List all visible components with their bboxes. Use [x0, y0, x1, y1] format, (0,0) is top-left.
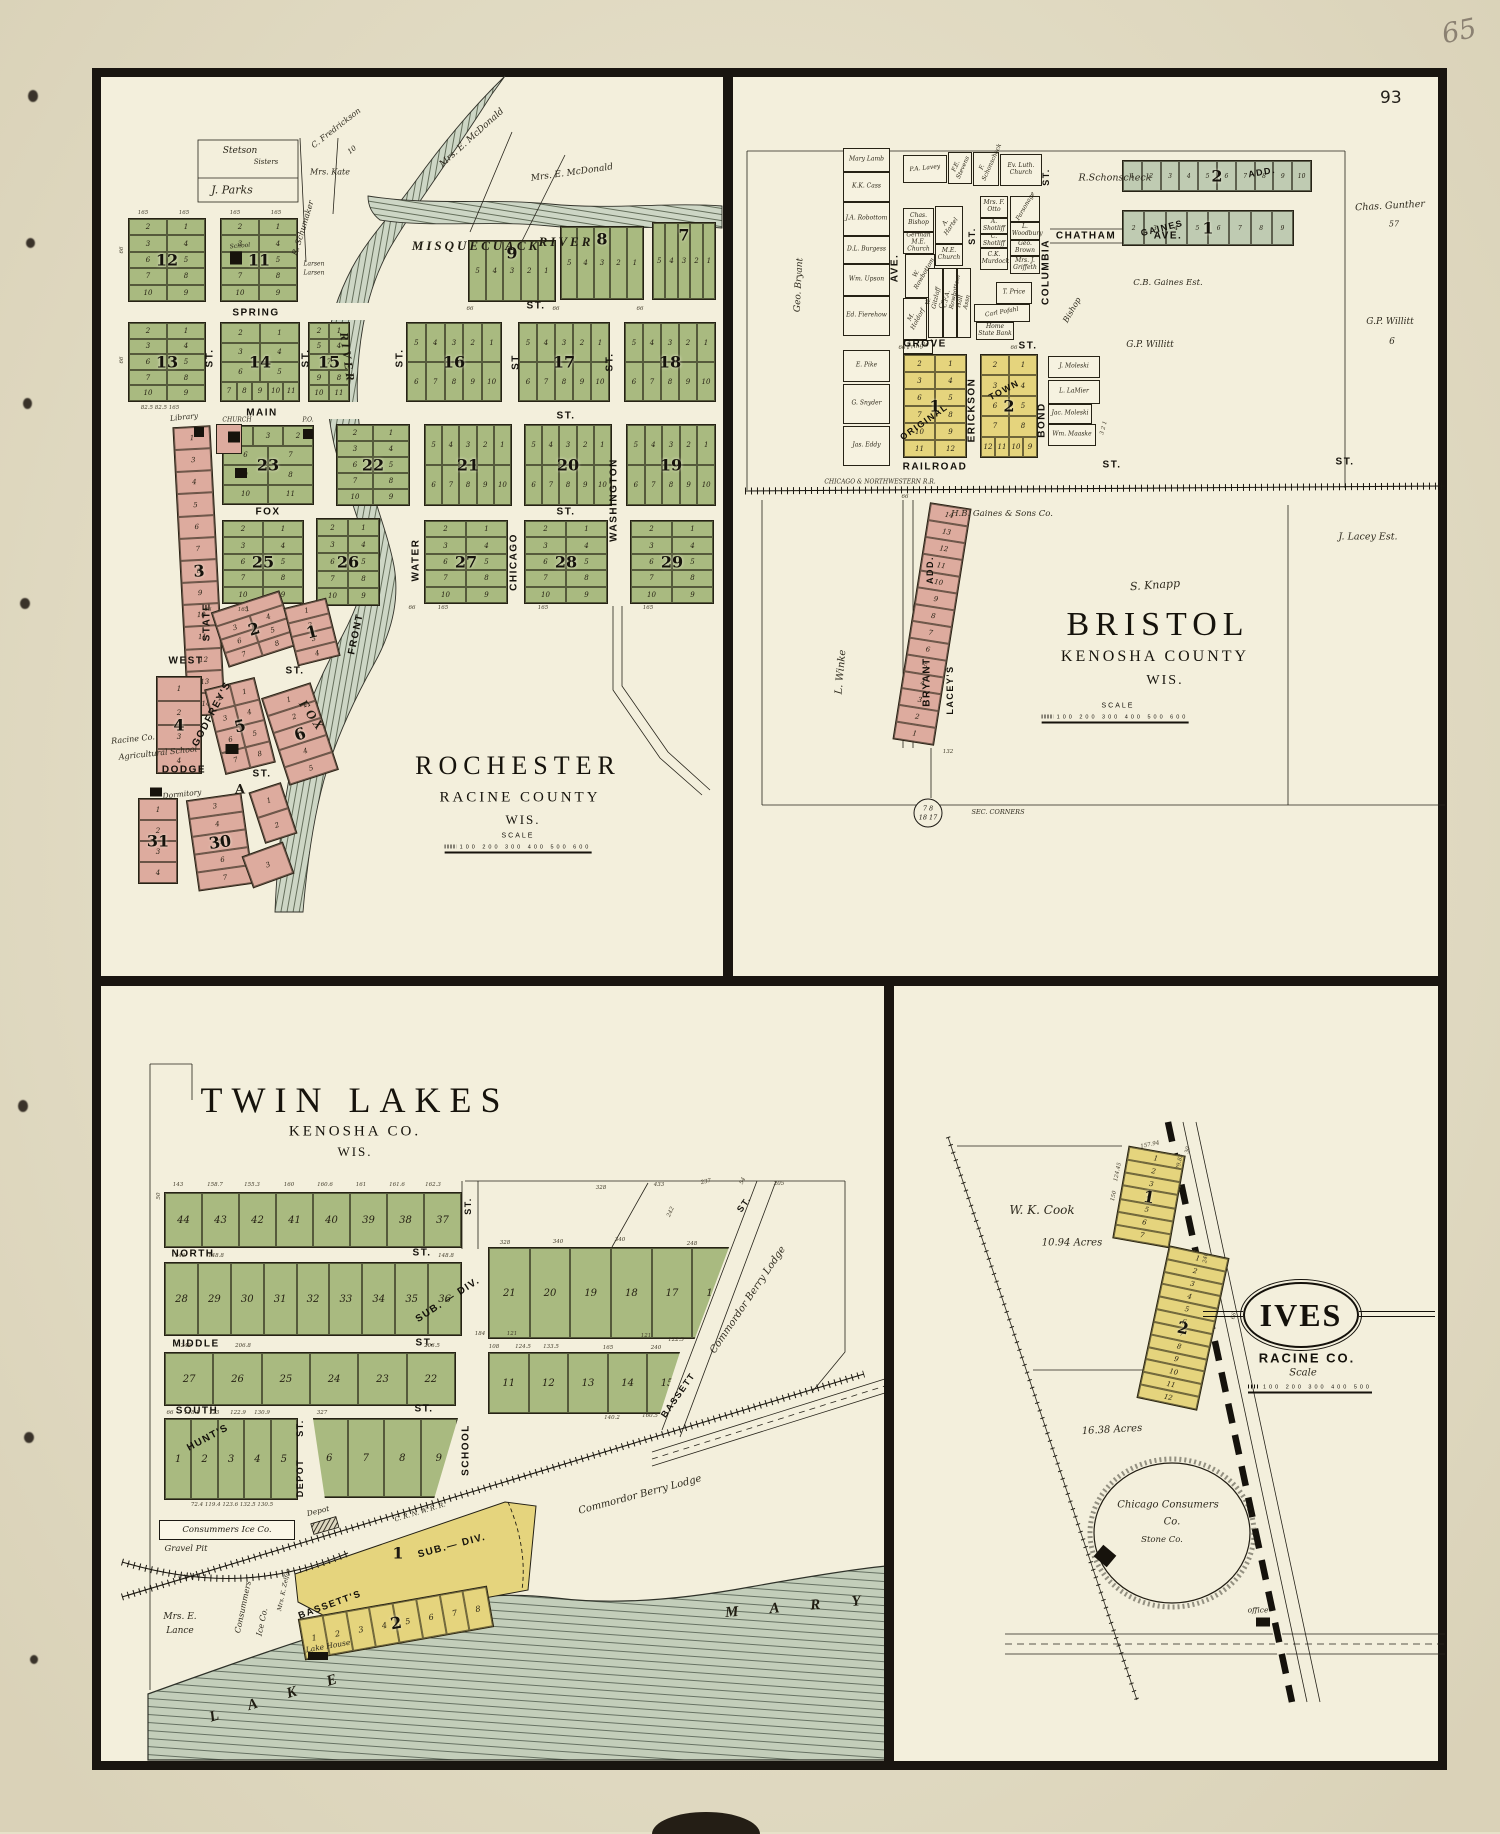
dimension-label: 161: [356, 1182, 367, 1188]
block-number: 4: [173, 716, 184, 735]
street-label: WEST: [169, 656, 204, 667]
dimension-label: 165: [238, 607, 249, 613]
scale-label: SCALE: [1102, 703, 1135, 710]
plat-block-ives-1: 12345671: [1112, 1146, 1185, 1249]
owner-label: Mrs. E.: [163, 1612, 196, 1622]
plat-block: Geo. Brown: [1010, 240, 1040, 256]
block-number: 2: [1003, 397, 1014, 416]
dimension-label: 328: [596, 1185, 607, 1191]
owner-label: Scale: [1289, 1368, 1317, 1379]
owner-label: C.B. Gaines Est.: [1133, 278, 1202, 288]
street-label: ST.: [463, 1197, 473, 1215]
dimension-label: 124.5: [515, 1344, 531, 1350]
owner-label: W. K. Cook: [1009, 1203, 1074, 1217]
block-number: 20: [557, 456, 579, 475]
street-label: WASHINGTON: [609, 458, 620, 542]
dimension-label: 328: [500, 1240, 511, 1246]
boxed-label: Consummers Ice Co.: [159, 1520, 295, 1540]
street-label: CHATHAM: [1056, 231, 1116, 242]
dimension-label: 433: [654, 1182, 665, 1188]
dimension-label: 184: [475, 1331, 486, 1337]
map-subtitle: KENOSHA COUNTY: [1061, 648, 1249, 666]
dimension-label: 165: [538, 605, 549, 611]
street-label: ST.: [1103, 460, 1122, 471]
owner-label: Mrs. Kate: [310, 168, 350, 177]
building-icon: [228, 432, 240, 443]
small-label: CHICAGO & NORTHWESTERN R.R.: [824, 479, 935, 486]
owner-label: Stetson: [223, 146, 258, 156]
scale-bar: 100 200 300 400 500 600: [445, 845, 592, 854]
plat-maps: 2134657810912213465781091154321954321854…: [0, 0, 1500, 1832]
dimension-label: 66: [1230, 1312, 1238, 1320]
dimension-label: 66: [119, 357, 125, 364]
owner-label: Co.: [1164, 1517, 1181, 1528]
parcel-owner-label: Jac. Moleski: [1050, 411, 1089, 418]
parcel-owner-label: German M.E. Church: [905, 233, 932, 254]
dimension-label: 122.5: [668, 1337, 684, 1343]
owner-label: Chicago Consumers: [1117, 1500, 1218, 1511]
block-number: 1: [1202, 219, 1213, 238]
map-subtitle2: WIS.: [505, 812, 540, 828]
owner-label: H.B. Gaines & Sons Co.: [951, 509, 1053, 519]
dimension-label: 206.8: [235, 1343, 251, 1349]
street-label: WATER: [411, 539, 422, 582]
street-label: ST.: [413, 1248, 432, 1259]
building-icon: [1094, 1545, 1117, 1567]
map-subtitle2: WIS.: [337, 1144, 372, 1160]
map-county-label: RACINE CO.: [1259, 1351, 1356, 1366]
owner-label: 57: [1389, 220, 1399, 229]
dimension-label: 50: [156, 1193, 162, 1200]
parcel-owner-label: Jas. Eddy: [845, 443, 887, 450]
dimension-label: 66: [167, 1410, 174, 1416]
dimension-label: 66: [205, 607, 212, 613]
block-number: 27: [455, 553, 477, 572]
dimension-label: 165: [271, 210, 282, 216]
parcel-owner-label: T. Price: [998, 290, 1030, 297]
scale-bar: 100 200 300 400 500 600: [1042, 715, 1189, 724]
block-number: 23: [257, 456, 279, 475]
parcel-owner-label: J. Moleski: [1051, 364, 1098, 371]
owner-label: Lance: [166, 1626, 194, 1636]
dimension-label: 165: [643, 605, 654, 611]
dimension-label: 158.7: [207, 1182, 223, 1188]
owner-label: G.P. Willitt: [1126, 340, 1174, 350]
map-subtitle: RACINE COUNTY: [439, 790, 600, 807]
street-label: ST.: [395, 349, 406, 368]
block-number: 17: [553, 353, 575, 372]
street-label: ST.: [557, 411, 576, 422]
dimension-label: 66: [1011, 345, 1018, 351]
block-number: 18: [659, 353, 681, 372]
block-number: 22: [362, 456, 384, 475]
building-icon: [235, 468, 247, 478]
section-corner-marker: 7 8 18 17: [914, 799, 943, 828]
street-label: AVE.: [890, 254, 901, 283]
street-label: COLUMBIA: [1041, 239, 1052, 305]
street-label: ST.: [527, 301, 546, 312]
block-number: 26: [337, 553, 359, 572]
dimension-label: 66: [409, 605, 416, 611]
dimension-label: 160: [284, 1182, 295, 1188]
parcel-owner-label: C. Shotliff: [982, 234, 1006, 248]
street-label: BOND: [1037, 402, 1048, 437]
street-label: ST.: [295, 1419, 305, 1437]
owner-label: 6: [1389, 337, 1395, 347]
parcel-owner-label: Ev. Luth. Church: [1002, 163, 1040, 177]
parcel-owner-label: Mary Lamb: [845, 157, 887, 164]
block-number: 14: [249, 353, 271, 372]
street-label: SPRING: [232, 308, 279, 319]
street-label: ST.: [415, 1404, 434, 1415]
parcel-owner-label: C.K. Murdock: [982, 252, 1006, 266]
street-label: CHICAGO: [509, 533, 520, 591]
map-title: ROCHESTER: [415, 751, 621, 781]
map-title-ives: IVES: [1243, 1282, 1359, 1348]
street-label: ST.: [1336, 457, 1355, 468]
map-title: TWIN LAKES: [201, 1079, 510, 1121]
street-label: DODGE: [162, 765, 206, 776]
dimension-label: 121: [641, 1333, 652, 1339]
dimension-label: 66: [119, 247, 125, 254]
block-number: 15: [318, 353, 340, 372]
block-number: 11: [248, 251, 270, 270]
parcel-owner-label: A. Shotliff: [982, 219, 1006, 233]
map-subtitle2: WIS.: [1146, 673, 1183, 689]
street-label: ST.: [967, 227, 977, 245]
owner-label: Gravel Pit: [164, 1544, 207, 1554]
street-label: ST.: [286, 666, 305, 677]
parcel-owner-label: Home State Bank: [978, 324, 1012, 338]
dimension-label: 122.9: [230, 1410, 246, 1416]
dimension-label: 161.6: [389, 1182, 405, 1188]
parcel-owner-label: Mrs. F. Otto: [982, 200, 1006, 214]
owner-label: R.Schonscheck: [1079, 173, 1152, 184]
street-label: ADD.: [925, 556, 935, 584]
dimension-label: 327: [317, 1410, 328, 1416]
block-number: 13: [156, 353, 178, 372]
parcel-owner-label: Chas. Bishop: [905, 213, 932, 227]
owner-label: J. Lacey Est.: [1338, 532, 1397, 543]
map-title: BRISTOL: [1066, 606, 1249, 644]
dimension-label: 150: [1110, 1190, 1118, 1202]
building-icon: [194, 427, 204, 437]
dimension-label: 143: [173, 1182, 184, 1188]
street-label: FOX: [255, 507, 280, 518]
dimension-label: 148.8: [208, 1253, 224, 1259]
map-subtitle: KENOSHA CO.: [289, 1124, 421, 1141]
dimension-label: 165: [138, 210, 149, 216]
dimension-label: 123: [209, 1410, 220, 1416]
dimension-label: 132: [943, 749, 954, 755]
street-label: ST.: [1019, 341, 1038, 352]
parcel-owner-label: L. Woodbury: [1012, 224, 1038, 238]
street-label: ST.: [605, 353, 616, 372]
street-label: SCHOOL: [461, 1424, 472, 1476]
street-label: ST.: [205, 349, 216, 368]
dimension-label: 162.3: [425, 1182, 441, 1188]
dimension-label: 340: [615, 1237, 626, 1243]
street-label: MIDDLE: [172, 1339, 219, 1350]
dimension-label: 82.5 82.5 165: [141, 405, 180, 411]
water-label: MISQUECUACK: [412, 238, 540, 254]
block-number: 16: [443, 353, 465, 372]
small-label: Larsen: [304, 270, 325, 277]
parcel-owner-label: G. Snyder: [845, 401, 887, 408]
parcel-owner-label: M.E. Church: [937, 248, 961, 262]
atlas-page: { "page": {"number": "93", "handwritten_…: [0, 0, 1500, 1832]
dimension-label: 66: [467, 306, 474, 312]
street-label: BRYANT: [922, 657, 933, 706]
parcel-owner-label: J.A. Robottom: [845, 216, 887, 223]
parcel-owner-label: Wm. Maaske: [1050, 432, 1093, 439]
parcel-owner-label: L. LaMier: [1051, 389, 1098, 396]
dimension-label: 205: [774, 1181, 785, 1187]
street-label: ST.: [301, 349, 312, 368]
owner-label: J. Parks: [211, 184, 253, 197]
map-panel-ives: 123456711234567891011122W. K. Cook10.94 …: [0, 0, 1500, 1832]
owner-label: Stone Co.: [1141, 1535, 1183, 1545]
plat-block: L. Woodbury: [1010, 222, 1040, 240]
owner-label: G.P. Willitt: [1366, 317, 1414, 327]
building-icon: [226, 744, 239, 754]
street-label: ST: [511, 354, 522, 370]
water-label: RIVER: [539, 234, 594, 250]
dimension-label: 124.45: [1113, 1162, 1123, 1182]
dimension-label: 243: [181, 1343, 192, 1349]
building-icon: [150, 788, 162, 797]
dimension-label: 66: [902, 494, 909, 500]
block-number: 25: [252, 553, 274, 572]
dimension-label: 165: [179, 210, 190, 216]
dimension-label: 66: [637, 306, 644, 312]
dimension-label: 72.4 119.4 123.6 132.5 130.5: [191, 1502, 273, 1508]
dimension-label: 165: [230, 210, 241, 216]
building-icon: [308, 1652, 328, 1660]
small-label: Larsen: [304, 261, 325, 268]
dimension-label: 206.5: [424, 1343, 440, 1349]
dimension-label: 248: [687, 1241, 698, 1247]
parcel-owner-label: D.L. Burgess: [845, 247, 887, 254]
block-letter: A: [235, 783, 245, 798]
block-number: 12: [156, 251, 178, 270]
page-number: 93: [1380, 88, 1402, 108]
plat-block: Mrs. J. Griffeth: [1010, 256, 1040, 274]
dimension-label: 121: [507, 1331, 518, 1337]
block-number: 2: [1211, 167, 1222, 186]
street-label: ST.: [253, 769, 272, 780]
street-label: DEPOT: [295, 1459, 305, 1498]
block-number: 19: [660, 456, 682, 475]
parcel-owner-label: E. Pike: [845, 363, 887, 370]
plat-block: German M.E. Church: [903, 232, 934, 254]
street-label: ERICKSON: [967, 378, 978, 443]
block-number: 28: [555, 553, 577, 572]
block-number: 7: [678, 226, 689, 245]
dimension-label: 108: [489, 1344, 500, 1350]
dimension-label: 140.2: [604, 1415, 620, 1421]
street-label: ST.: [557, 507, 576, 518]
block-number: 31: [147, 832, 169, 851]
owner-label: 10.94 Acres: [1042, 1238, 1102, 1249]
block-number: 8: [596, 230, 607, 249]
owner-label: 16.38 Acres: [1082, 1423, 1143, 1437]
parcel-owner-label: Geo. Brown: [1012, 241, 1038, 255]
plat-block-ives-2: 1234567891011122: [1136, 1245, 1229, 1410]
building-icon: [230, 252, 242, 265]
dimension-label: 118.8: [184, 1410, 200, 1416]
dimension-label: 133.5: [543, 1344, 559, 1350]
building-icon: [303, 429, 313, 439]
parcel-owner-label: Mrs. J. Griffeth: [1012, 258, 1038, 272]
small-label: SEC. CORNERS: [971, 808, 1024, 816]
dimension-label: 146: [175, 1253, 186, 1259]
street-label: LACEY'S: [945, 665, 955, 714]
street-label: GROVE: [903, 339, 947, 350]
dimension-label: 165: [438, 605, 449, 611]
scale-bar: 100 200 300 400 500: [1248, 1385, 1372, 1394]
block-letter: 1: [392, 1544, 403, 1563]
dimension-label: 340: [553, 1239, 564, 1245]
dimension-label: 148.8: [438, 1253, 454, 1259]
dimension-label: 240: [651, 1345, 662, 1351]
small-label: CHURCH: [222, 417, 251, 424]
dimension-label: 30: [1184, 1146, 1191, 1154]
parcel-owner-label: K.K. Cass: [845, 184, 887, 191]
owner-label: Sisters: [254, 158, 279, 166]
block-number: 29: [661, 553, 683, 572]
dimension-label: 165: [603, 1345, 614, 1351]
building-icon: [1256, 1618, 1270, 1627]
small-label: P.O.: [302, 417, 313, 424]
owner-label: office: [1248, 1606, 1269, 1615]
plat-block: Home State Bank: [976, 322, 1014, 340]
plat-block: C. Shotliff: [980, 234, 1008, 248]
dimension-label: 155.3: [244, 1182, 260, 1188]
plat-block: A. Shotliff: [980, 218, 1008, 234]
street-label: ST.: [1041, 168, 1051, 186]
dimension-label: 160.6: [317, 1182, 333, 1188]
block-number: 21: [457, 456, 479, 475]
parcel-owner-label: Ed. Fierehow: [845, 313, 887, 320]
dimension-label: 160.5: [642, 1413, 658, 1419]
dimension-label: 66: [553, 306, 560, 312]
parcel-owner-label: Wm. Upson: [845, 277, 887, 284]
street-label: RAILROAD: [903, 462, 968, 473]
scale-label: SCALE: [502, 833, 535, 840]
dimension-label: 66: [899, 345, 906, 351]
dimension-label: 130.9: [254, 1410, 270, 1416]
